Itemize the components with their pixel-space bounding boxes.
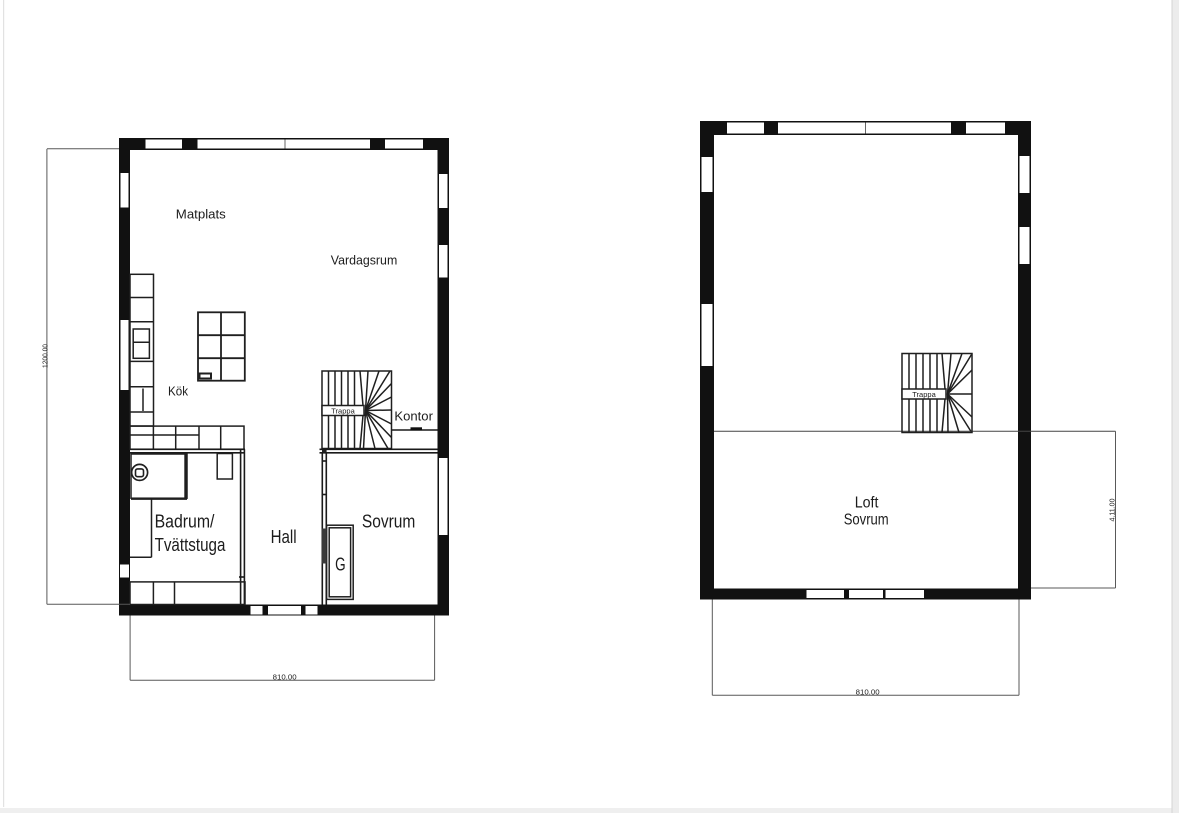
svg-text:Loft: Loft	[855, 495, 879, 512]
svg-text:Vardagsrum: Vardagsrum	[331, 252, 398, 267]
svg-text:Kontor: Kontor	[394, 410, 433, 424]
svg-text:G: G	[335, 555, 346, 575]
svg-text:Badrum/: Badrum/	[155, 510, 216, 531]
svg-text:Tvättstuga: Tvättstuga	[155, 534, 226, 555]
svg-text:Kök: Kök	[168, 384, 188, 399]
svg-text:Matplats: Matplats	[176, 206, 226, 221]
svg-text:1200.00: 1200.00	[43, 344, 50, 368]
svg-text:Hall: Hall	[271, 526, 297, 547]
svg-text:Sovrum: Sovrum	[844, 511, 889, 528]
svg-text:4.11.00: 4.11.00	[1109, 498, 1116, 521]
svg-text:Sovrum: Sovrum	[362, 510, 416, 531]
svg-text:Trappa: Trappa	[331, 406, 355, 415]
svg-text:810.00: 810.00	[273, 673, 297, 682]
svg-text:810.00: 810.00	[856, 688, 880, 697]
svg-text:Trappa: Trappa	[912, 390, 936, 399]
